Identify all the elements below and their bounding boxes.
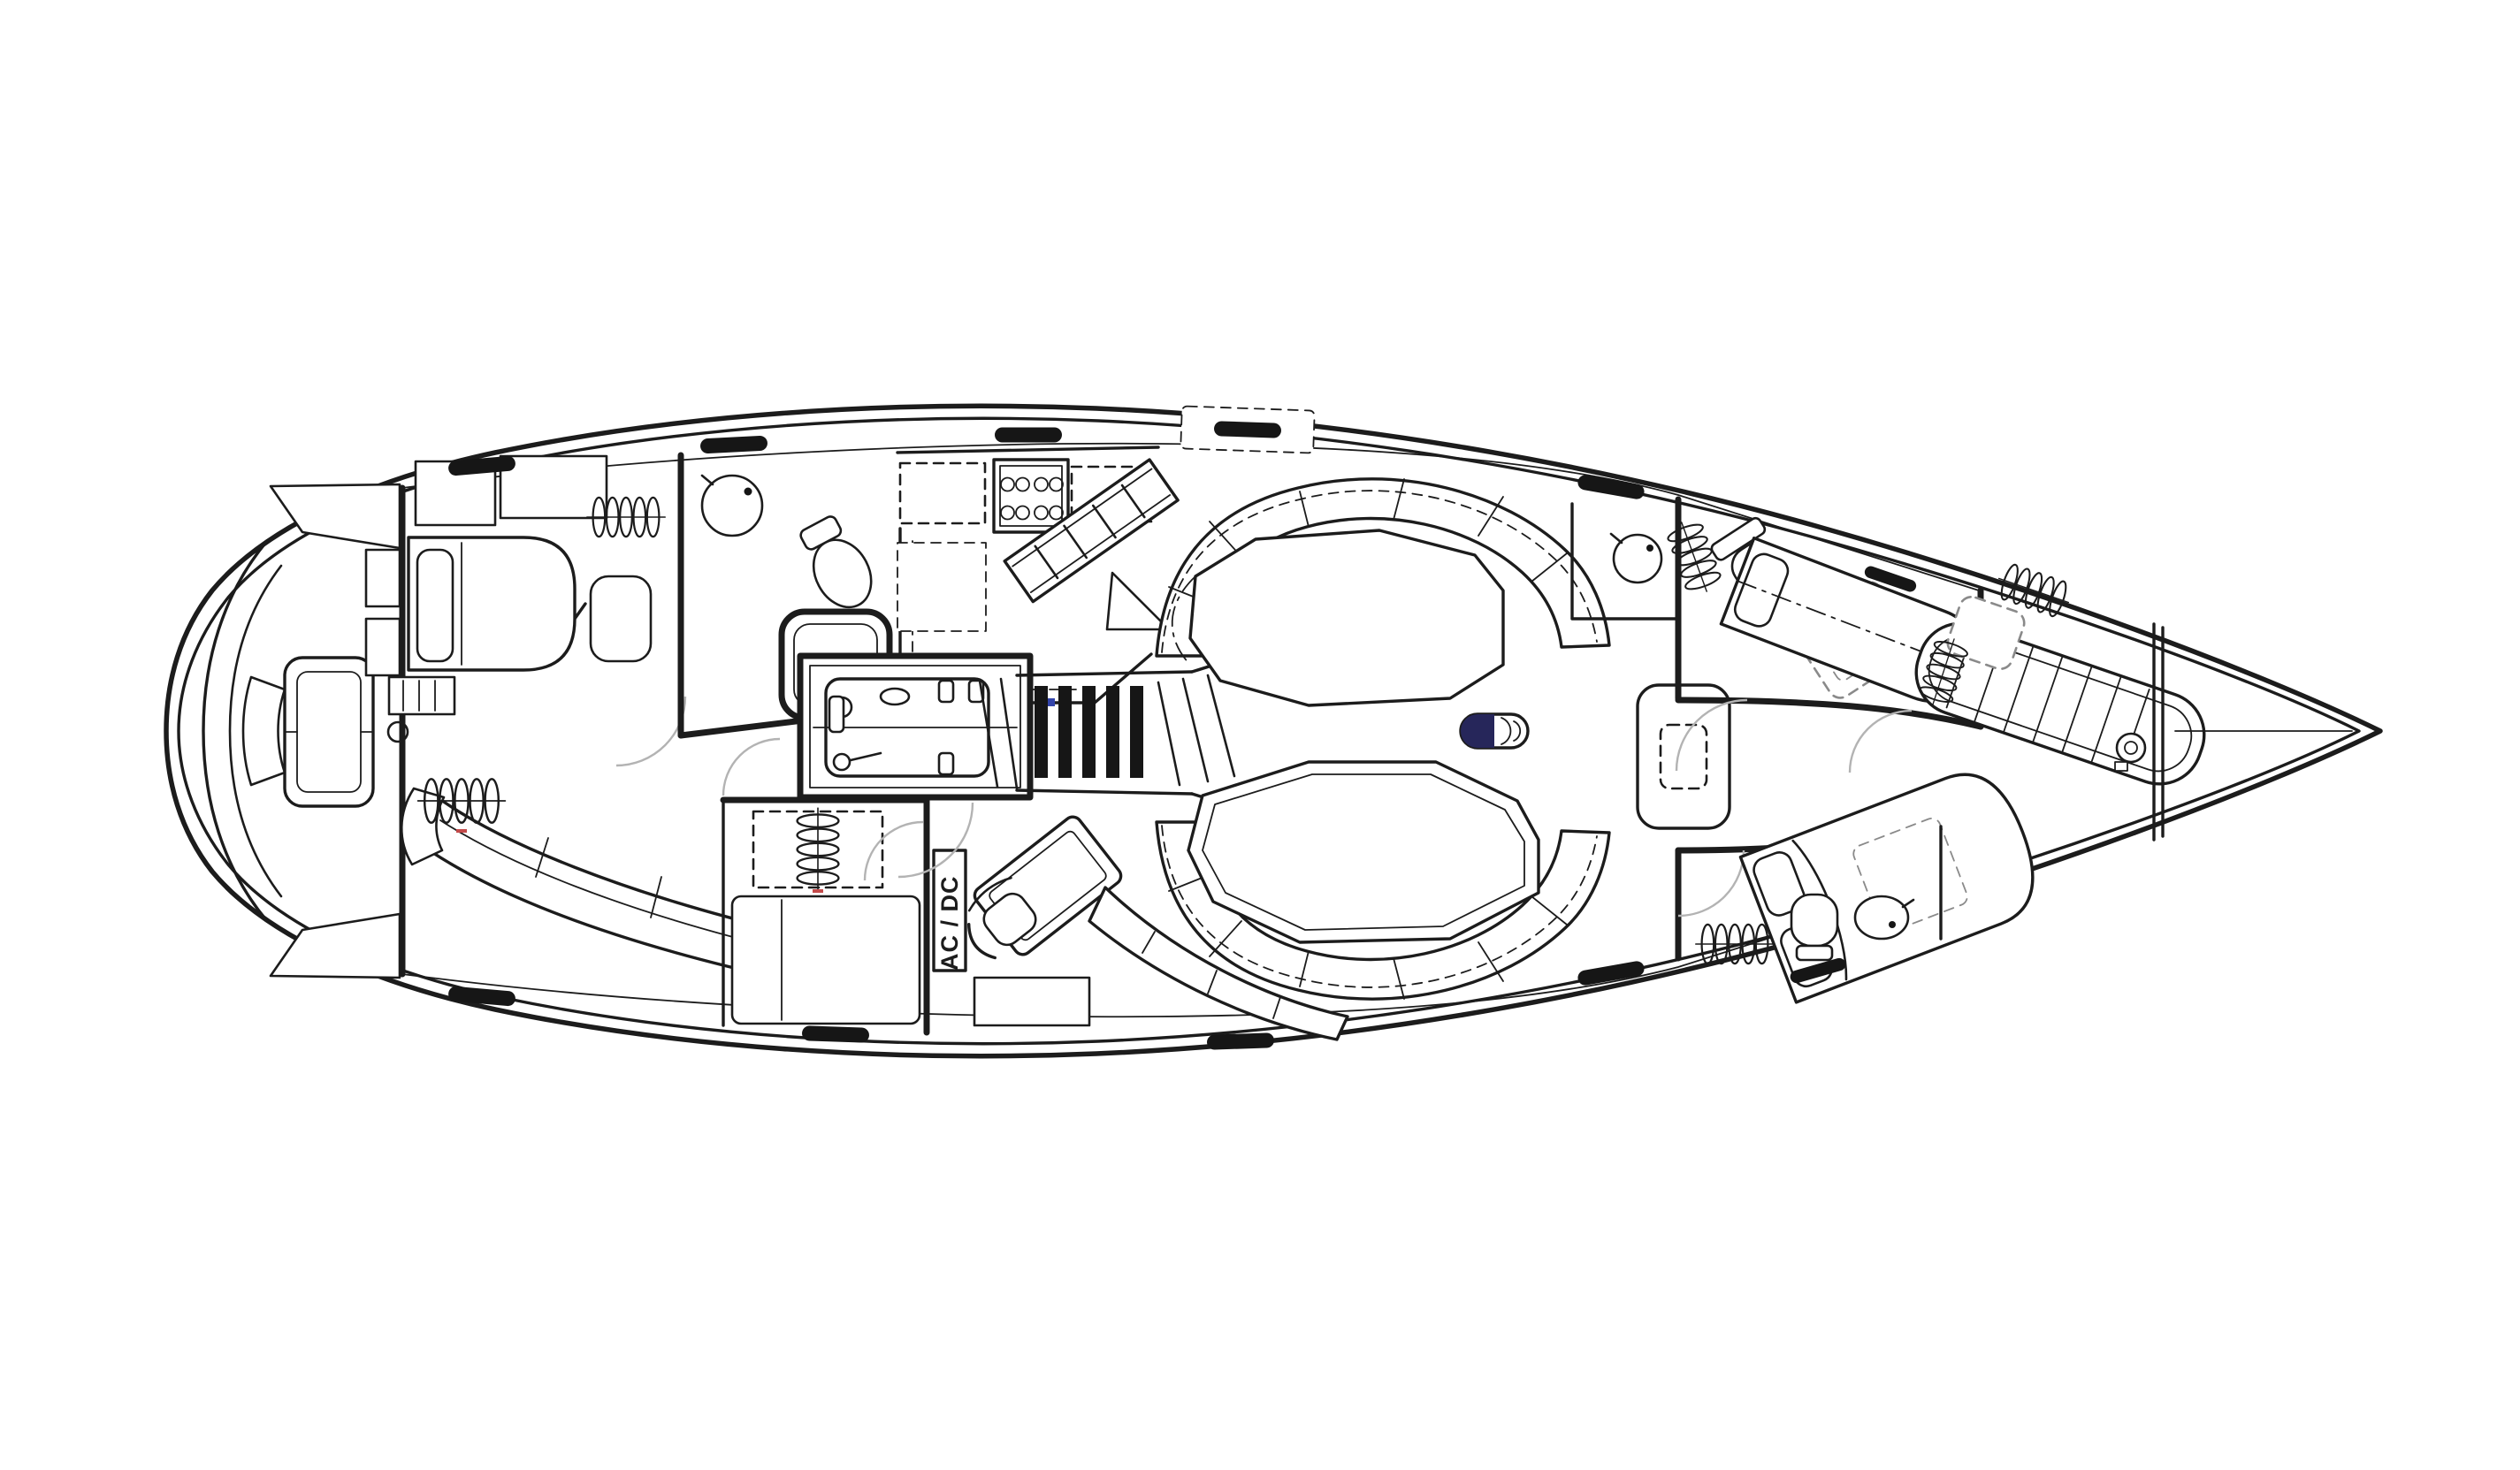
saloon-cabinet-inset	[1661, 725, 1707, 788]
helm-seat	[243, 677, 285, 785]
faucet-dot	[1646, 545, 1653, 552]
overhead-locker	[900, 463, 985, 523]
faucet-dot	[745, 488, 752, 496]
stair-tread-dark	[1082, 686, 1096, 778]
mast	[1461, 714, 1528, 748]
engine-front	[829, 697, 844, 732]
toilet	[1791, 895, 1837, 960]
sink-basin	[1855, 896, 1908, 939]
yacht-floor-plan-canvas: AC / DC	[0, 0, 2520, 1470]
owner-vanity-seat	[591, 576, 651, 661]
yacht-floor-plan: AC / DC	[0, 0, 2520, 1470]
stair-tread-dark	[1058, 686, 1072, 778]
stair-tread-dark	[1130, 686, 1143, 778]
acdc-label: AC / DC	[936, 876, 963, 971]
bed-foot-bench	[389, 677, 454, 714]
stair-tread-dark	[1106, 686, 1119, 778]
aft-cabin-step	[366, 550, 400, 606]
stair-tread-dark	[1035, 686, 1048, 778]
sink-basin	[702, 476, 762, 536]
aft-cabinet	[500, 456, 607, 518]
galley-storage-dashed	[897, 543, 986, 631]
nav-platform	[974, 978, 1089, 1025]
owner-bed-pillow	[417, 550, 453, 661]
aft-cabin-step	[366, 619, 400, 675]
crew-bunk	[732, 896, 920, 1024]
faucet-dot	[1889, 921, 1896, 928]
stove	[994, 460, 1068, 532]
saloon-table	[1188, 762, 1539, 942]
mast-blue-fill	[1461, 714, 1494, 748]
saloon-floor-upper	[1190, 530, 1503, 705]
